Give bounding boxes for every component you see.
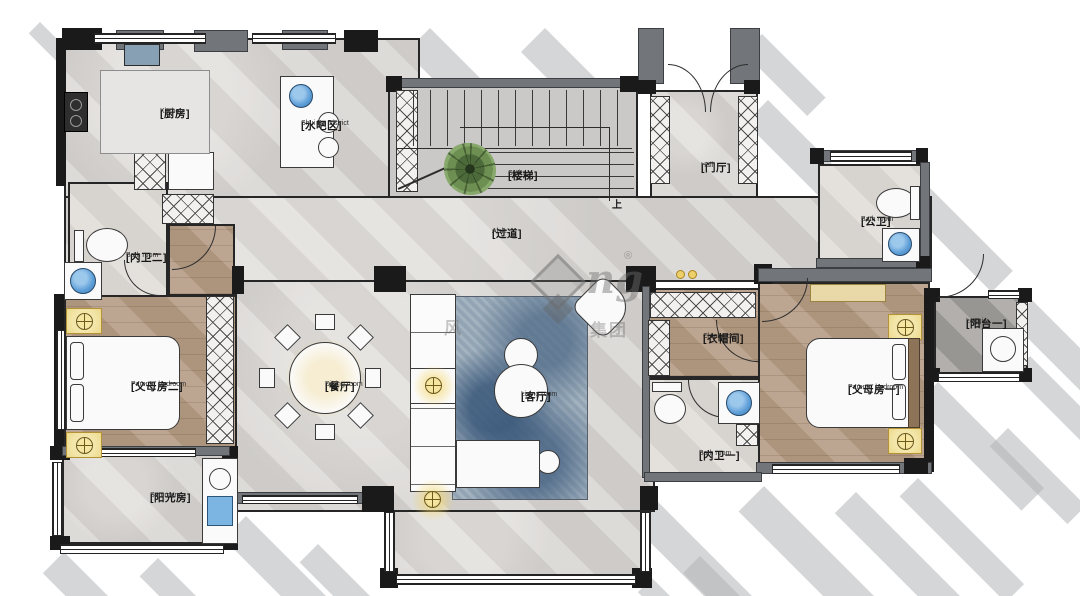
watermark-cn-right: 集团	[590, 316, 628, 341]
wall-segment	[388, 78, 640, 88]
toilet-tank	[910, 186, 920, 220]
sink-icon	[70, 268, 96, 294]
pillow	[70, 384, 84, 422]
bedside-light	[888, 314, 922, 340]
watermark-script-text: ng	[586, 256, 643, 303]
registered-mark: ®	[624, 250, 632, 262]
hall-wall-hatch	[650, 96, 670, 184]
window	[396, 574, 636, 585]
dining-chair	[315, 424, 335, 440]
wall-segment	[920, 162, 930, 266]
pillow	[892, 344, 906, 380]
bath1-cabinet-hatch	[736, 424, 758, 446]
dining-chair	[365, 368, 381, 388]
stairs-upper-flight	[396, 90, 632, 146]
wall-segment	[810, 148, 824, 164]
entry-door-left-leaf	[668, 64, 706, 112]
window	[830, 151, 912, 162]
wall-segment	[904, 458, 928, 474]
window	[640, 512, 651, 572]
wall-column	[232, 266, 244, 294]
wall-column	[638, 28, 664, 84]
window	[56, 330, 65, 430]
window	[988, 290, 1020, 299]
coffee-table	[456, 440, 540, 488]
wall-segment	[638, 80, 656, 94]
sink-icon	[726, 390, 752, 416]
sunroom-basin-icon	[209, 468, 231, 490]
washing-machine-drum	[990, 336, 1016, 362]
water-bar-sink-icon	[289, 84, 313, 108]
dining-chair	[259, 368, 275, 388]
bedside-light	[888, 428, 922, 454]
toilet-tank	[74, 230, 84, 262]
stairs-up-annotation: 上	[612, 196, 622, 211]
bar-stool	[318, 137, 339, 158]
ceiling-lamp-icon	[425, 377, 442, 394]
loggia-door-arc	[938, 254, 984, 298]
dining-table	[289, 342, 361, 414]
window	[94, 33, 206, 44]
bedroom2-wardrobe-hatch	[206, 296, 234, 444]
window	[252, 33, 336, 44]
pillow	[70, 342, 84, 380]
toilet-icon	[654, 394, 686, 424]
kitchen-cabinet-hatch	[134, 152, 166, 190]
stairs-landing-line	[396, 148, 632, 149]
dining-chair	[315, 314, 335, 330]
window	[60, 544, 224, 554]
bay-window-floor	[384, 510, 650, 580]
storage-hatch	[162, 194, 214, 224]
wall-segment	[1018, 288, 1032, 302]
bedroom1-cabinet	[810, 284, 886, 302]
window	[242, 495, 358, 504]
stove-icon	[64, 92, 88, 132]
bedside-light	[66, 432, 102, 458]
stairs-direction-line	[609, 127, 610, 201]
sink-icon	[888, 232, 912, 256]
kitchen-cabinet	[168, 152, 214, 190]
sunroom-blue-unit	[207, 496, 233, 526]
stairs-direction-line	[460, 127, 610, 128]
wall-segment	[640, 486, 658, 510]
shadow-stripe	[140, 558, 257, 596]
kitchen-island	[100, 70, 210, 154]
window	[384, 512, 395, 572]
plant-icon	[444, 143, 496, 195]
wall-column	[374, 266, 406, 292]
ceiling-lamp-icon	[424, 491, 441, 508]
toilet-icon	[86, 228, 128, 262]
bedside-light	[66, 308, 102, 334]
wall-segment	[362, 486, 394, 512]
window	[52, 462, 62, 536]
headboard	[908, 338, 920, 428]
brand-watermark: ng ® 风 集团	[420, 248, 690, 358]
wall-segment	[924, 300, 934, 472]
watermark-cn-left: 风	[444, 314, 463, 339]
toilet-tank	[652, 382, 682, 392]
window	[938, 372, 1020, 382]
entry-door-right-leaf	[710, 64, 748, 112]
wall-segment	[344, 30, 378, 52]
kitchen-appliance-icon	[124, 44, 160, 66]
stairs-lower-flight	[482, 152, 634, 196]
window	[772, 464, 900, 474]
wall-segment	[644, 472, 762, 482]
floor-plan: ng ® 风 集团 [厨房]Kitchen [水吧区]Shui Ba Distr…	[0, 0, 1080, 596]
